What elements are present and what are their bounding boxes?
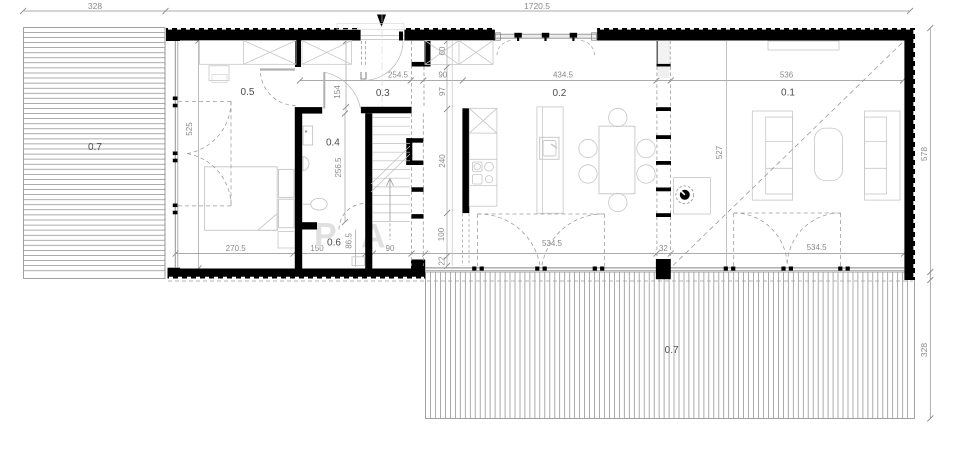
svg-text:22: 22 [438, 256, 447, 265]
svg-text:97: 97 [438, 87, 447, 96]
svg-text:154: 154 [333, 85, 342, 99]
svg-text:527: 527 [715, 145, 724, 159]
svg-text:578: 578 [919, 147, 929, 161]
svg-text:525: 525 [185, 122, 194, 136]
svg-text:270.5: 270.5 [226, 244, 247, 253]
svg-text:0.6: 0.6 [327, 238, 341, 249]
svg-text:536: 536 [780, 71, 794, 80]
svg-text:100: 100 [437, 227, 446, 241]
svg-text:0.1: 0.1 [781, 88, 795, 99]
svg-text:0.3: 0.3 [376, 88, 390, 99]
svg-text:256.5: 256.5 [334, 157, 343, 178]
svg-text:0.7: 0.7 [665, 345, 679, 356]
svg-text:534.5: 534.5 [807, 243, 828, 252]
svg-text:534.5: 534.5 [542, 239, 563, 248]
svg-text:0.5: 0.5 [241, 87, 255, 98]
svg-text:328: 328 [88, 1, 102, 11]
svg-text:0.7: 0.7 [88, 142, 102, 153]
svg-text:A: A [361, 218, 386, 256]
svg-text:434.5: 434.5 [553, 71, 574, 80]
svg-text:1720.5: 1720.5 [524, 1, 550, 11]
svg-text:32: 32 [659, 244, 668, 253]
svg-text:0.2: 0.2 [552, 88, 566, 99]
svg-text:P: P [314, 217, 337, 255]
svg-text:240: 240 [438, 154, 447, 168]
svg-text:86.5: 86.5 [345, 233, 354, 249]
svg-text:90: 90 [438, 71, 447, 80]
svg-text:328: 328 [919, 343, 929, 357]
svg-text:254.5: 254.5 [388, 71, 409, 80]
svg-text:0.4: 0.4 [326, 138, 340, 149]
svg-text:90: 90 [386, 244, 395, 253]
